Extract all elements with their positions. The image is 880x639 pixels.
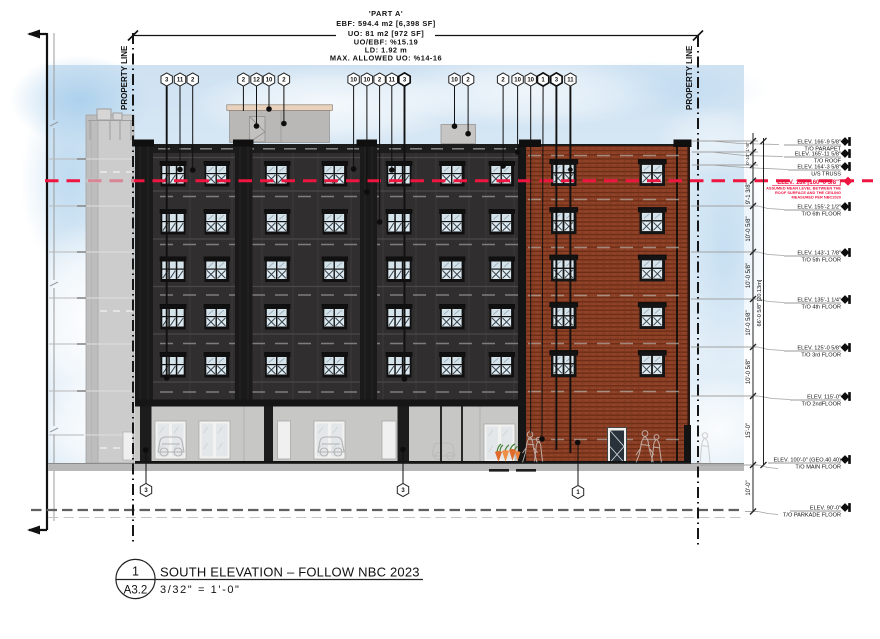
svg-text:A3.2: A3.2 <box>124 585 148 597</box>
svg-text:11: 11 <box>389 78 396 84</box>
svg-text:ELEV. 164'-3 5/8": ELEV. 164'-3 5/8" <box>797 165 841 171</box>
svg-text:10'-0 5/8": 10'-0 5/8" <box>746 310 752 335</box>
svg-text:3/32" = 1'-0": 3/32" = 1'-0" <box>160 584 241 596</box>
svg-text:10: 10 <box>514 78 521 84</box>
svg-text:ELEV. 115'-0": ELEV. 115'-0" <box>807 395 841 401</box>
svg-text:1: 1 <box>132 565 139 579</box>
svg-text:11: 11 <box>177 78 184 84</box>
svg-text:10: 10 <box>266 78 273 84</box>
svg-text:'PART A': 'PART A' <box>369 9 403 18</box>
svg-text:T/O PARKADE FLOOR: T/O PARKADE FLOOR <box>783 513 841 519</box>
svg-text:0'-10": 0'-10" <box>745 153 750 165</box>
svg-text:ELEV. 165'-11 5/8": ELEV. 165'-11 5/8" <box>795 152 841 158</box>
svg-text:T/O 4th FLOOR: T/O 4th FLOOR <box>802 305 841 311</box>
svg-text:10'-0 5/8": 10'-0 5/8" <box>746 263 752 288</box>
svg-text:PROPERTY LINE: PROPERTY LINE <box>120 45 129 110</box>
svg-text:ELEV. 135'-1 1/4": ELEV. 135'-1 1/4" <box>797 298 841 304</box>
svg-text:10'-0 5/8": 10'-0 5/8" <box>746 359 752 384</box>
svg-text:T/O 5th FLOOR: T/O 5th FLOOR <box>802 258 841 264</box>
svg-text:10'-0 5/8": 10'-0 5/8" <box>746 216 752 241</box>
svg-text:U/S TRUSS: U/S TRUSS <box>811 172 841 178</box>
svg-text:ELEV. 125'-0 5/8": ELEV. 125'-0 5/8" <box>797 346 841 352</box>
svg-text:EBF: 594.4 m2 [6,398 SF]: EBF: 594.4 m2 [6,398 SF] <box>336 19 436 28</box>
svg-text:MEASURED PER NBC2020: MEASURED PER NBC2020 <box>791 195 841 200</box>
svg-text:ELEV. 166'-9 5/8": ELEV. 166'-9 5/8" <box>797 140 841 146</box>
svg-text:10'-0": 10'-0" <box>746 480 752 495</box>
svg-text:ELEV. 155'-2 1/2": ELEV. 155'-2 1/2" <box>797 205 841 211</box>
svg-text:10: 10 <box>350 78 357 84</box>
svg-text:ELEV. 100'-0" (GEO.40.40): ELEV. 100'-0" (GEO.40.40) <box>773 458 841 464</box>
svg-text:10: 10 <box>364 78 371 84</box>
svg-text:PROPERTY LINE: PROPERTY LINE <box>685 45 694 110</box>
svg-text:SOUTH ELEVATION – FOLLOW NBC 2: SOUTH ELEVATION – FOLLOW NBC 2023 <box>160 565 420 580</box>
svg-text:12: 12 <box>253 78 260 84</box>
svg-text:MAX. ALLOWED UO: %14-16: MAX. ALLOWED UO: %14-16 <box>330 54 442 63</box>
svg-text:T/O 2ndFLOOR: T/O 2ndFLOOR <box>802 402 841 408</box>
svg-text:11: 11 <box>567 78 574 84</box>
svg-text:10: 10 <box>527 78 534 84</box>
svg-text:66'-0 5/8" [20.13m]: 66'-0 5/8" [20.13m] <box>757 279 763 326</box>
svg-text:ELEV. 90'-0": ELEV. 90'-0" <box>810 506 841 512</box>
svg-text:15'-0": 15'-0" <box>746 423 752 438</box>
svg-text:ELEV. 143'-1 7/8": ELEV. 143'-1 7/8" <box>797 251 841 257</box>
svg-text:9'-1 3/8": 9'-1 3/8" <box>746 182 752 204</box>
svg-text:1'-8": 1'-8" <box>745 142 750 152</box>
svg-text:T/O MAIN FLOOR: T/O MAIN FLOOR <box>795 465 841 471</box>
svg-text:10: 10 <box>451 78 458 84</box>
svg-text:T/O 6th FLOOR: T/O 6th FLOOR <box>802 212 841 218</box>
svg-text:T/O 3rd FLOOR: T/O 3rd FLOOR <box>801 353 841 359</box>
